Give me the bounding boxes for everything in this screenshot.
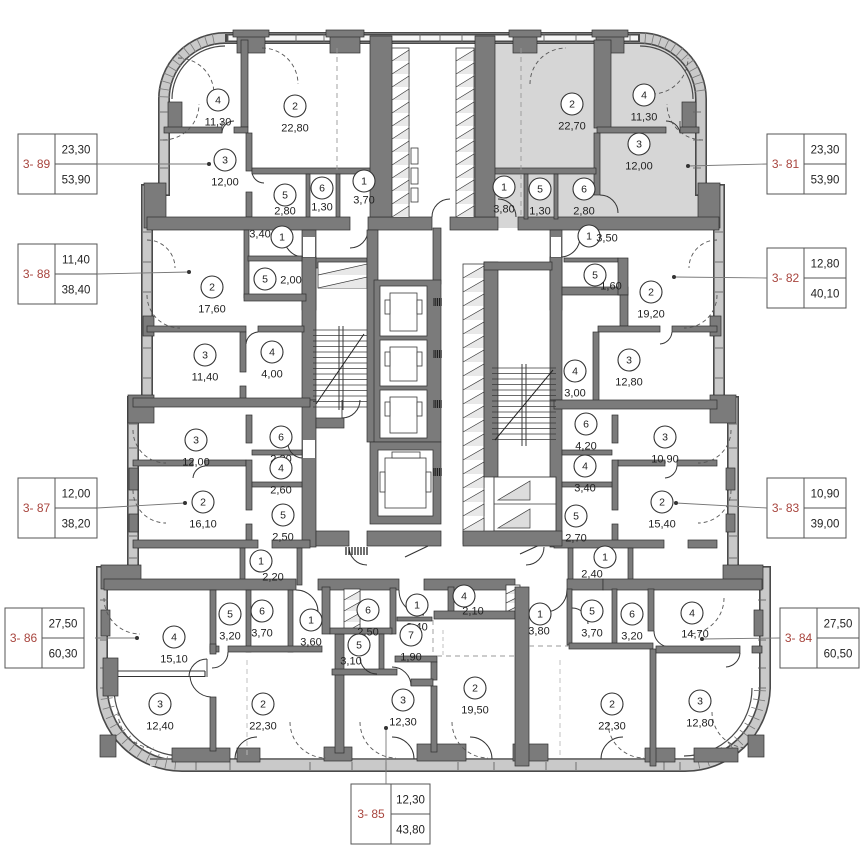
svg-text:2,00: 2,00 [280, 275, 301, 287]
svg-text:2: 2 [659, 497, 665, 509]
svg-text:53,90: 53,90 [811, 175, 840, 187]
svg-text:3: 3 [636, 139, 642, 151]
svg-text:1,30: 1,30 [311, 202, 332, 214]
svg-text:1: 1 [414, 600, 420, 612]
svg-text:17,60: 17,60 [198, 304, 226, 316]
svg-text:6: 6 [365, 605, 371, 617]
svg-text:1: 1 [361, 176, 367, 188]
svg-text:3: 3 [157, 699, 163, 711]
svg-text:23,30: 23,30 [811, 145, 840, 157]
svg-text:4: 4 [641, 90, 647, 102]
svg-text:5: 5 [282, 190, 288, 202]
svg-text:43,80: 43,80 [396, 825, 425, 837]
svg-text:4: 4 [689, 608, 695, 620]
svg-text:2: 2 [260, 699, 266, 711]
svg-text:12,80: 12,80 [811, 259, 840, 271]
svg-text:3- 87: 3- 87 [23, 501, 51, 515]
svg-text:22,70: 22,70 [558, 121, 586, 133]
svg-text:11,30: 11,30 [205, 117, 232, 129]
svg-text:6: 6 [629, 609, 635, 621]
svg-text:4: 4 [215, 95, 221, 107]
svg-text:4: 4 [582, 461, 588, 473]
svg-text:1: 1 [308, 615, 314, 627]
svg-text:12,30: 12,30 [396, 795, 425, 807]
svg-text:39,00: 39,00 [811, 519, 840, 531]
svg-text:3,40: 3,40 [574, 483, 595, 495]
svg-text:27,50: 27,50 [824, 619, 853, 631]
svg-text:12,80: 12,80 [615, 377, 643, 389]
svg-text:2,50: 2,50 [272, 532, 293, 544]
svg-text:38,40: 38,40 [62, 285, 91, 297]
svg-text:15,40: 15,40 [648, 519, 676, 531]
svg-text:3- 84: 3- 84 [785, 631, 813, 645]
svg-text:1: 1 [586, 231, 592, 243]
svg-text:3,40: 3,40 [249, 229, 270, 241]
svg-text:6: 6 [581, 184, 587, 196]
svg-text:3,00: 3,00 [564, 388, 585, 400]
svg-text:6: 6 [259, 606, 265, 618]
svg-text:3,10: 3,10 [340, 656, 361, 668]
svg-text:12,00: 12,00 [182, 457, 210, 469]
svg-text:4: 4 [171, 632, 177, 644]
svg-text:3,20: 3,20 [621, 631, 642, 643]
svg-text:60,50: 60,50 [824, 649, 853, 661]
svg-text:16,10: 16,10 [189, 519, 217, 531]
svg-text:60,30: 60,30 [49, 649, 78, 661]
svg-text:22,30: 22,30 [598, 721, 626, 733]
svg-text:1,60: 1,60 [600, 281, 621, 293]
svg-text:3,50: 3,50 [596, 233, 617, 245]
svg-text:38,20: 38,20 [62, 519, 91, 531]
svg-text:12,30: 12,30 [389, 717, 417, 729]
svg-text:15,10: 15,10 [160, 654, 188, 666]
svg-text:22,80: 22,80 [281, 123, 309, 135]
svg-text:12,00: 12,00 [211, 177, 239, 189]
svg-text:3: 3 [626, 355, 632, 367]
svg-text:2,40: 2,40 [581, 569, 602, 581]
svg-text:2: 2 [569, 99, 575, 111]
svg-text:3: 3 [222, 155, 228, 167]
svg-text:3- 82: 3- 82 [772, 271, 800, 285]
svg-text:5: 5 [356, 640, 362, 652]
svg-text:10,90: 10,90 [811, 489, 840, 501]
svg-text:19,50: 19,50 [461, 705, 489, 717]
svg-text:5: 5 [589, 606, 595, 618]
svg-text:2: 2 [472, 683, 478, 695]
svg-text:5: 5 [280, 510, 286, 522]
svg-text:5: 5 [537, 184, 543, 196]
svg-text:3: 3 [697, 696, 703, 708]
svg-text:2: 2 [648, 287, 654, 299]
svg-text:3,80: 3,80 [493, 204, 514, 216]
svg-text:3,20: 3,20 [219, 631, 240, 643]
svg-text:2: 2 [209, 282, 215, 294]
svg-text:5: 5 [262, 274, 268, 286]
svg-text:11,30: 11,30 [631, 112, 658, 124]
svg-text:3- 88: 3- 88 [23, 267, 51, 281]
svg-text:3,70: 3,70 [251, 628, 272, 640]
svg-text:3: 3 [193, 435, 199, 447]
svg-text:4,20: 4,20 [575, 441, 596, 453]
svg-text:3,60: 3,60 [300, 637, 321, 649]
svg-text:6: 6 [278, 432, 284, 444]
svg-text:2: 2 [200, 497, 206, 509]
svg-text:12,80: 12,80 [686, 718, 714, 730]
svg-text:53,90: 53,90 [62, 175, 91, 187]
svg-text:5: 5 [573, 511, 579, 523]
svg-text:19,20: 19,20 [637, 309, 665, 321]
svg-text:1: 1 [501, 182, 507, 194]
svg-text:3: 3 [400, 695, 406, 707]
svg-text:2,80: 2,80 [274, 206, 295, 218]
svg-text:4: 4 [572, 366, 578, 378]
svg-text:2,20: 2,20 [262, 572, 283, 584]
svg-text:3: 3 [662, 432, 668, 444]
svg-text:3: 3 [202, 350, 208, 362]
svg-text:2: 2 [292, 101, 298, 113]
svg-text:2,70: 2,70 [565, 533, 586, 545]
svg-text:22,30: 22,30 [249, 721, 277, 733]
svg-text:6: 6 [319, 183, 325, 195]
svg-text:2,60: 2,60 [270, 485, 291, 497]
svg-text:11,40: 11,40 [192, 372, 219, 384]
svg-text:6: 6 [583, 419, 589, 431]
svg-text:3- 81: 3- 81 [772, 157, 800, 171]
svg-text:4,00: 4,00 [261, 369, 282, 381]
svg-text:2,10: 2,10 [462, 606, 483, 618]
svg-text:10,90: 10,90 [651, 454, 679, 466]
svg-text:12,00: 12,00 [62, 489, 91, 501]
svg-text:2: 2 [609, 699, 615, 711]
svg-text:27,50: 27,50 [49, 619, 78, 631]
svg-text:3- 86: 3- 86 [10, 631, 38, 645]
svg-text:5: 5 [592, 270, 598, 282]
svg-text:1: 1 [537, 609, 543, 621]
svg-text:23,30: 23,30 [62, 145, 91, 157]
svg-text:1,90: 1,90 [400, 652, 421, 664]
svg-text:1: 1 [279, 232, 285, 244]
svg-text:3,70: 3,70 [581, 628, 602, 640]
svg-text:3- 85: 3- 85 [357, 807, 385, 821]
svg-text:4: 4 [278, 463, 284, 475]
svg-text:5: 5 [227, 609, 233, 621]
svg-text:3- 89: 3- 89 [23, 157, 51, 171]
svg-text:1: 1 [602, 552, 608, 564]
svg-text:2,80: 2,80 [573, 206, 594, 218]
svg-text:3- 83: 3- 83 [772, 501, 800, 515]
svg-text:3,80: 3,80 [528, 626, 549, 638]
svg-text:4: 4 [461, 591, 467, 603]
svg-text:1: 1 [258, 556, 264, 568]
svg-text:7: 7 [408, 630, 414, 642]
svg-text:40,10: 40,10 [811, 289, 840, 301]
svg-text:12,00: 12,00 [625, 161, 653, 173]
svg-text:12,40: 12,40 [146, 721, 174, 733]
svg-text:4: 4 [269, 347, 275, 359]
svg-text:1,30: 1,30 [529, 206, 550, 218]
svg-text:11,40: 11,40 [62, 255, 90, 267]
svg-text:3,70: 3,70 [353, 195, 374, 207]
